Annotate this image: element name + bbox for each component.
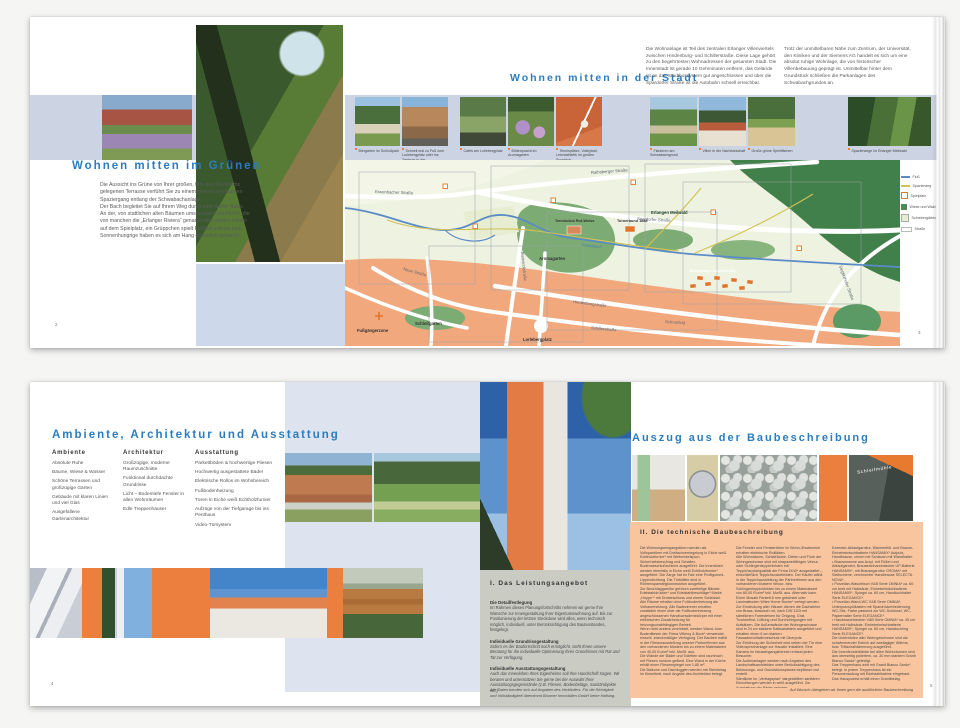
list-item: Hochwertig ausgestattete Bäder	[195, 470, 287, 476]
caption-spielflaechen: Große grüne Spielflächen	[748, 148, 795, 153]
photo-schwabachgrund	[650, 97, 697, 146]
technical-footer: Auf Wunsch übergeben wir Ihnen gern die …	[790, 688, 913, 692]
page-title-ambiente: Ambiente, Architektur und Ausstattung	[52, 429, 340, 441]
orange-panel	[819, 455, 847, 521]
caption-villen: Villen in der Nachbarschaft	[699, 148, 746, 153]
caption-meilwald: Spazierwege im Erlanger Meilwald	[848, 148, 931, 153]
list-item: Funktional durchdachte Grundrisse	[123, 476, 189, 488]
spread-bottom: Ambiente, Architektur und Ausstattung Am…	[30, 382, 945, 706]
photo-spielflaechen	[748, 97, 795, 146]
photo-orange-building	[480, 382, 631, 570]
service-panel: I. Das Leistungsangebot Die Detailfestle…	[480, 570, 631, 706]
legend-footpath-label: Spazierweg	[913, 184, 932, 188]
photo-mill-building	[285, 453, 372, 522]
map-lorlebergplatz-circle	[534, 319, 548, 333]
technical-col2: Die Fenster und Fenstertüren im Wohn-/Es…	[736, 546, 824, 688]
technical-panel: II. Die technische Baubeschreibung Die W…	[630, 522, 923, 698]
map-label-wohnanlage: Wohnanlage Schleifmühle	[689, 269, 736, 273]
map-label-meilwald: Erlangen Meilwald	[651, 210, 688, 215]
photo-meilwald	[848, 97, 931, 146]
photo-interior-room	[632, 455, 685, 521]
service-footnote: Alle Daten berufen sich auf Angaben des …	[490, 687, 621, 698]
list-header-architektur: Architektur	[123, 450, 189, 456]
legend-meadow-swatch	[901, 204, 907, 210]
legend-footpath-swatch	[901, 185, 910, 187]
city-map-svg: Rathsberger Straße Essenbacher Straße Sp…	[345, 160, 900, 346]
list-item: Ausgefallene Gartenarchitektur	[52, 510, 116, 522]
legend-river-label: Fluß	[913, 175, 920, 179]
photo-house-flower-meadow	[102, 95, 192, 160]
technical-col1: Die Wohnungseingangstüren werden als Vol…	[640, 546, 728, 688]
photo-tennis	[556, 97, 602, 146]
photo-penthouse-building	[210, 568, 327, 638]
service-header: I. Das Leistungsangebot	[490, 580, 588, 587]
caption-aromagarten: Blütenpracht im Aromagarten	[508, 148, 554, 158]
spread-top: Wohnen mitten im Grünen Die Aussicht ins…	[30, 17, 945, 348]
list-item: Fußbodenheizung	[195, 489, 287, 495]
list-item: Schöne Terrassen und großzügige Gärten	[52, 479, 116, 491]
map-label-aromagarten: Aromagarten	[539, 256, 566, 261]
photo-villen	[699, 97, 746, 146]
map-turnerbund-building	[625, 226, 635, 232]
map-label-tennisclub: Tennisclub Rot-Weiss	[555, 219, 594, 223]
list-item: Bäume, Wiese & Wasser	[52, 470, 116, 476]
list-ambiente: Ambiente Absolute Ruhe Bäume, Wiese & Wa…	[52, 450, 116, 526]
list-header-ambiente: Ambiente	[52, 450, 116, 456]
brochure-scan: Wohnen mitten im Grünen Die Aussicht ins…	[0, 0, 960, 728]
photo-cobblestones	[720, 455, 817, 521]
map-label-fussgaengerzone: Fußgängerzone	[357, 328, 389, 333]
technical-header: II. Die technische Baubeschreibung	[640, 529, 784, 536]
list-item: Video-Türsystem	[195, 523, 287, 529]
service-sub1-body: Im Rahmen dieses Planungsfortschritts ne…	[490, 605, 621, 633]
list-item: Parkettböden & hochwertige Fliesen	[195, 461, 287, 467]
list-item: Gebäude mit klaren Linien und viel Glas	[52, 495, 116, 507]
list-item: Aufzüge von der Tiefgarage bis ins Penth…	[195, 507, 287, 519]
legend-street-label: Straße	[915, 227, 926, 231]
list-item: Absolute Ruhe	[52, 461, 116, 467]
list-item: Großzügige, moderne Raumzuschnitte	[123, 461, 189, 473]
service-sub2-body: Sofern es der Baufortschritt noch ermögl…	[490, 644, 621, 661]
legend-playground-swatch	[901, 192, 908, 199]
photo-cafes	[460, 97, 506, 146]
sign-label: Schleifmühle	[857, 464, 893, 474]
list-architektur: Architektur Großzügige, moderne Raumzusc…	[123, 450, 189, 517]
list-ausstattung: Ausstattung Parkettböden & hochwertige F…	[195, 450, 287, 532]
map-label-lorlebergplatz: Lorlebergplatz	[523, 337, 552, 342]
intro-text-gruenen: Die Aussicht ins Grüne von Ihrer großen,…	[100, 182, 250, 240]
list-item: Edle Treppenhäuser	[123, 507, 189, 513]
list-item: Elektrische Rollos im Wohnbereich	[195, 479, 287, 485]
legend-river-swatch	[901, 176, 910, 178]
page-number-3: 3	[918, 330, 921, 335]
map-label-schlossgarten: Schloßgarten	[415, 321, 442, 326]
city-map: Rathsberger Straße Essenbacher Straße Sp…	[345, 160, 900, 346]
caption-schwabachgrund: Flanieren am Schwabachgrund	[650, 148, 697, 158]
page-number-2: 2	[55, 322, 58, 327]
orange-panel	[152, 568, 210, 638]
legend-street-swatch	[901, 227, 912, 232]
list-header-ausstattung: Ausstattung	[195, 450, 287, 456]
map-tennis-courts	[567, 226, 581, 234]
photo-biergarten	[355, 97, 400, 146]
orange-panel	[82, 568, 102, 638]
blue-rect-bottom	[196, 264, 345, 346]
page-number-4: 4	[51, 681, 54, 686]
list-item: Türen in Eiche weiß Echtholzfurnier	[195, 498, 287, 504]
service-body: Die Detailfestlegung Im Rahmen dieses Pl…	[490, 594, 621, 693]
photo-wall-lamp	[687, 455, 718, 521]
photo-lorlebergplatz-building	[402, 97, 448, 146]
legend-playground-label: Spielplatz	[911, 194, 927, 198]
caption-biergarten: Biergarten im Schloßpark	[355, 148, 400, 153]
map-label-turnerbund: Turnerbund 1888	[617, 219, 648, 223]
photo-wooden-bench	[343, 568, 423, 638]
technical-col3: Exzenter-Ablaufgarnitur, Wannenfüll- und…	[832, 546, 916, 688]
photo-park-meadow	[374, 453, 480, 522]
list-item: Licht – Bodentiefe Fenster in allen Wohn…	[123, 492, 189, 504]
photo-schleifmuehle-sign: Schleifmühle	[849, 455, 913, 521]
legend-gardens-swatch	[901, 214, 909, 222]
caption-cafes: Cafés am Lorlebergplatz	[460, 148, 506, 153]
page-edge-curl-bottom	[932, 382, 945, 706]
intro-text-stadt-col1: Die Wohnanlage ist Teil des zentralen Er…	[646, 47, 778, 87]
orange-panel	[327, 568, 343, 638]
page-title-baubeschreibung: Auszug aus der Baubeschreibung	[632, 432, 870, 444]
intro-text-stadt-col2: Trotz der unmittelbaren Nähe zum Zentrum…	[784, 47, 912, 87]
photo-staircase	[30, 568, 82, 638]
page-edge-curl-top	[932, 17, 945, 348]
photo-white-tower	[102, 568, 152, 638]
photo-aromagarten	[508, 97, 554, 146]
page-title-gruenen: Wohnen mitten im Grünen	[72, 160, 262, 172]
